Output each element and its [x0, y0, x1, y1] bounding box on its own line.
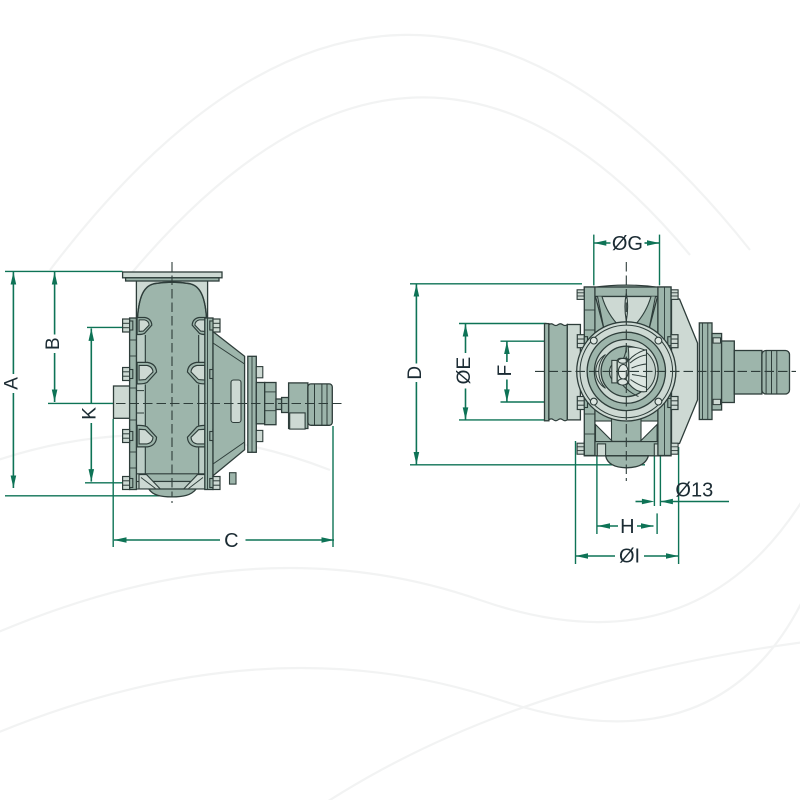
svg-text:H: H: [620, 516, 634, 538]
svg-text:F: F: [495, 365, 516, 377]
svg-text:ØI: ØI: [619, 546, 640, 568]
svg-text:ØE: ØE: [454, 357, 475, 384]
svg-text:B: B: [43, 337, 64, 350]
svg-text:K: K: [80, 407, 101, 420]
svg-text:ØG: ØG: [612, 233, 643, 255]
svg-text:A: A: [2, 377, 23, 390]
svg-text:C: C: [224, 530, 238, 552]
svg-text:Ø13: Ø13: [675, 479, 713, 501]
svg-text:D: D: [405, 366, 426, 380]
